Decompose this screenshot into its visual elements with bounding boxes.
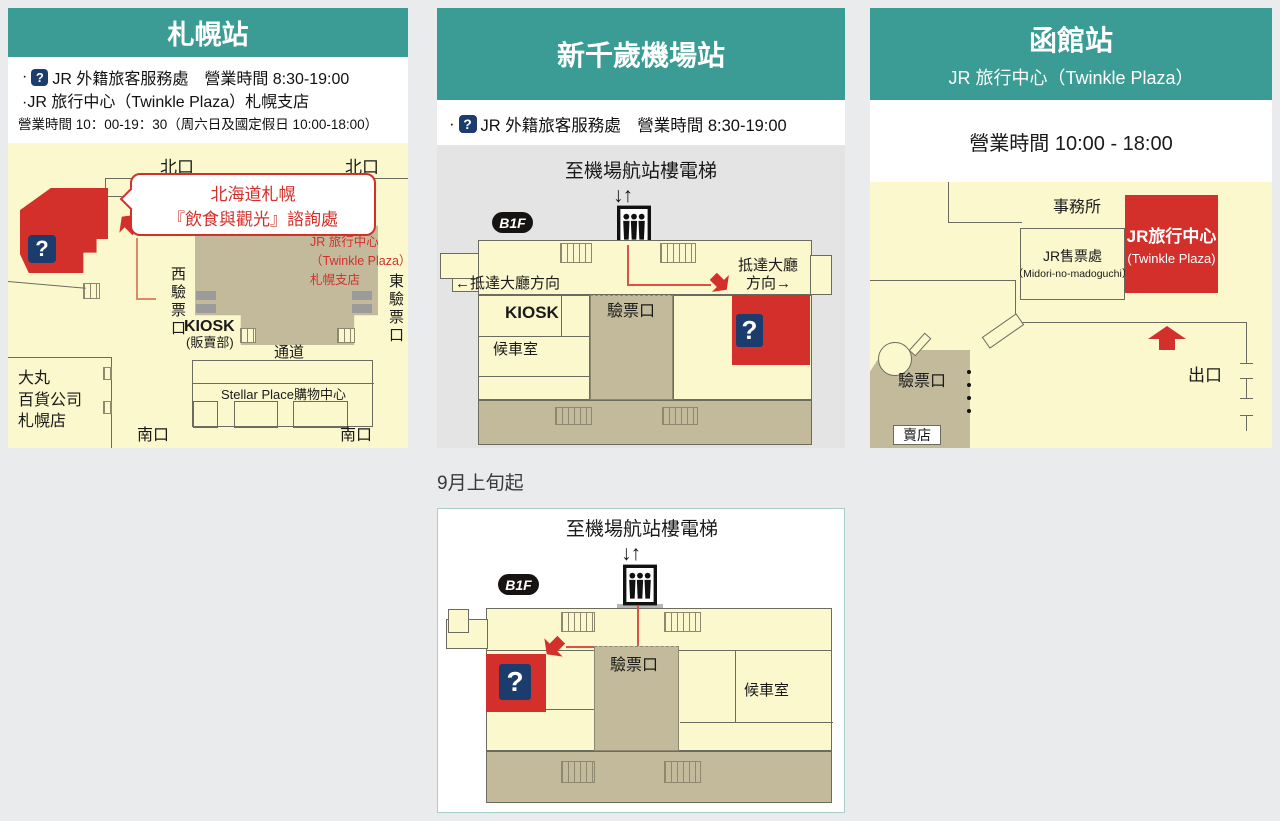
wall-line <box>948 222 1022 223</box>
ticket-office-box: JR售票處 （Midori-no-madoguchi） <box>1020 228 1125 300</box>
shop-box: 賣店 <box>893 425 941 445</box>
question-icon: ? <box>28 235 56 263</box>
question-icon: ? <box>499 664 531 700</box>
escalator-hatch <box>561 761 595 783</box>
wall-line <box>735 651 736 722</box>
ticket-gate-bar <box>196 291 216 300</box>
b1f-badge: B1F <box>492 212 533 233</box>
daimaru-line1: 大丸 <box>18 368 82 390</box>
bullet: · <box>22 68 27 86</box>
chitose-info: · ? JR 外籍旅客服務處 營業時間 8:30-19:00 <box>437 100 845 145</box>
route-line <box>637 606 639 648</box>
platform-band <box>478 400 812 445</box>
south-exit-right: 南口 <box>340 426 372 445</box>
hakodate-info: 營業時間 10:00 - 18:00 <box>870 100 1272 182</box>
escalator-hatch <box>561 612 595 632</box>
sapporo-info: · ? JR 外籍旅客服務處 營業時間 8:30-19:00 ·JR 旅行中心（… <box>8 57 408 143</box>
sapporo-map: 北口 北口 通道 JR 旅行中心 （Twinkle Plaza） 札幌支店 <box>8 143 408 448</box>
up-down-arrows-icon: ↓↑ <box>621 541 640 566</box>
route-line <box>627 284 711 286</box>
question-icon: ? <box>736 314 763 347</box>
shop-unit <box>234 401 278 428</box>
shop-unit <box>193 401 218 428</box>
wall-line <box>1015 322 1246 323</box>
jr-center-line2: (Twinkle Plaza) <box>1127 251 1215 266</box>
panel-chitose-september: 至機場航站樓電梯 ↓↑ B1F <box>437 508 845 813</box>
exit-label: 出口 <box>1188 366 1222 386</box>
wall-line <box>1246 415 1247 431</box>
escalator-hatch <box>103 401 112 414</box>
escalator-hatch <box>240 328 256 343</box>
panel-chitose-header: 新千歲機場站 <box>437 8 845 100</box>
door-jamb <box>1240 415 1253 416</box>
east-gate-label: 東驗票口 <box>386 273 404 345</box>
panel-hakodate-header: 函館站 JR 旅行中心（Twinkle Plaza） <box>870 8 1272 100</box>
panel-chitose: 新千歲機場站 · ? JR 外籍旅客服務處 營業時間 8:30-19:00 至機… <box>437 8 845 448</box>
ticket-office-line2: （Midori-no-madoguchi） <box>1013 268 1133 281</box>
panel-sapporo-header: 札幌站 <box>8 8 408 57</box>
stellar-place-box: Stellar Place購物中心 <box>192 360 373 427</box>
ticket-gate-bar <box>196 304 216 313</box>
wall-line <box>870 280 1015 281</box>
wall-line <box>8 357 111 358</box>
ticket-gate-label: 驗票口 <box>898 372 946 391</box>
escalator-hatch <box>337 328 355 343</box>
daimaru-label: 大丸 百貨公司 札幌店 <box>18 368 82 433</box>
gate-dot <box>967 370 971 374</box>
office-label: 事務所 <box>1053 198 1101 217</box>
panel-hakodate: 函館站 JR 旅行中心（Twinkle Plaza） 營業時間 10:00 - … <box>870 8 1272 448</box>
hakodate-subtitle: JR 旅行中心（Twinkle Plaza） <box>948 64 1193 90</box>
shop-label: 賣店 <box>903 427 931 444</box>
jr-travel-center-area: JR旅行中心 (Twinkle Plaza) <box>1125 195 1218 293</box>
platform-band <box>486 751 832 803</box>
escalator-hatch <box>555 407 592 425</box>
question-icon: ? <box>31 69 48 86</box>
door-jamb <box>1240 398 1253 399</box>
chitose-map: 至機場航站樓電梯 ↓↑ B1F <box>437 145 845 448</box>
escalator-hatch <box>662 407 698 425</box>
route-line <box>627 245 629 286</box>
wall-line <box>561 296 562 336</box>
arrival-hall-left-label: ←抵達大廳方向 <box>455 275 560 293</box>
hakodate-hours: 營業時間 10:00 - 18:00 <box>870 132 1272 156</box>
wall-line <box>1246 378 1247 399</box>
waiting-room-label: 候車室 <box>744 682 789 700</box>
escalator-hatch <box>664 612 701 632</box>
daimaru-line2: 百貨公司 <box>18 390 82 412</box>
wall-line <box>193 383 374 384</box>
escalator-hatch <box>83 283 100 299</box>
ticket-gate-bar <box>352 304 372 313</box>
callout-line2: 『飲食與觀光』諮詢處 <box>168 205 338 230</box>
jr-label-line2: （Twinkle Plaza） <box>310 252 408 271</box>
escalator-hatch <box>560 243 592 263</box>
wall-line <box>680 722 833 723</box>
sapporo-info-line1: · ? JR 外籍旅客服務處 營業時間 8:30-19:00 <box>22 65 349 89</box>
chitose-title: 新千歲機場站 <box>557 34 725 74</box>
gate-dot <box>967 396 971 400</box>
daimaru-line3: 札幌店 <box>18 411 82 433</box>
leader-line <box>136 238 138 298</box>
hakodate-map: 事務所 JR售票處 （Midori-no-madoguchi） JR旅行中心 (… <box>870 182 1272 448</box>
hakodate-title: 函館站 <box>1029 19 1113 59</box>
kiosk-label: KIOSK <box>184 317 235 336</box>
wall-line <box>1246 322 1247 364</box>
escalator-hatch <box>664 761 701 783</box>
sapporo-info1-text: JR 外籍旅客服務處 營業時間 8:30-19:00 <box>52 65 349 89</box>
page: 札幌站 · ? JR 外籍旅客服務處 營業時間 8:30-19:00 ·JR 旅… <box>0 0 1280 821</box>
elevator-title: 至機場航站樓電梯 <box>437 161 845 184</box>
sapporo-title: 札幌站 <box>168 13 249 52</box>
chitose-info1-text: JR 外籍旅客服務處 營業時間 8:30-19:00 <box>481 112 787 136</box>
wall-line <box>479 376 591 377</box>
arrival-hall-right-label2: 方向→ <box>746 275 791 293</box>
south-exit-left: 南口 <box>137 426 169 445</box>
side-room <box>448 609 469 633</box>
wall-line <box>479 336 591 337</box>
ticket-gate-bar <box>352 291 372 300</box>
gate-dot <box>967 383 971 387</box>
kiosk-label: KIOSK <box>505 303 559 323</box>
wall-line <box>8 281 86 289</box>
ticket-gate-label: 驗票口 <box>607 302 655 321</box>
escalator-hatch <box>103 367 112 380</box>
arrival-hall-right-label1: 抵達大廳 <box>738 257 798 275</box>
door-leaf <box>982 313 1024 349</box>
chitose-info-line1: · ? JR 外籍旅客服務處 營業時間 8:30-19:00 <box>449 112 787 136</box>
bullet: · <box>449 115 455 134</box>
escalator-hatch <box>660 243 696 263</box>
leader-line <box>136 298 156 300</box>
question-icon: ? <box>459 115 477 133</box>
sapporo-info-line3: 營業時間 10：00-19：30（周六日及國定假日 10:00-18:00） <box>18 113 378 133</box>
callout-bubble: 北海道札幌 『飲食與觀光』諮詢處 <box>130 173 376 236</box>
sapporo-info-line2: ·JR 旅行中心（Twinkle Plaza）札幌支店 <box>22 88 309 112</box>
wall-line <box>948 182 949 222</box>
gate-dot <box>967 409 971 413</box>
jr-center-line1: JR旅行中心 <box>1127 222 1217 247</box>
waiting-room-label: 候車室 <box>493 341 538 359</box>
callout-line1: 北海道札幌 <box>211 180 296 205</box>
b1f-badge: B1F <box>498 574 539 595</box>
concourse-band-right <box>810 255 832 295</box>
door-jamb <box>1240 363 1253 364</box>
ticket-office-line1: JR售票處 <box>1043 248 1102 265</box>
kiosk-sub-label: (販賣部) <box>186 335 234 351</box>
elevator-title: 至機場航站樓電梯 <box>438 519 846 542</box>
red-arrow-icon <box>1148 326 1186 350</box>
panel-sapporo: 札幌站 · ? JR 外籍旅客服務處 營業時間 8:30-19:00 ·JR 旅… <box>8 8 408 448</box>
door-jamb <box>1240 378 1253 379</box>
ticket-gate-label: 驗票口 <box>610 656 658 675</box>
september-label: 9月上旬起 <box>437 468 524 495</box>
shop-unit <box>293 401 348 428</box>
elevator-icon <box>623 564 657 606</box>
door-swing-arc <box>878 342 912 376</box>
